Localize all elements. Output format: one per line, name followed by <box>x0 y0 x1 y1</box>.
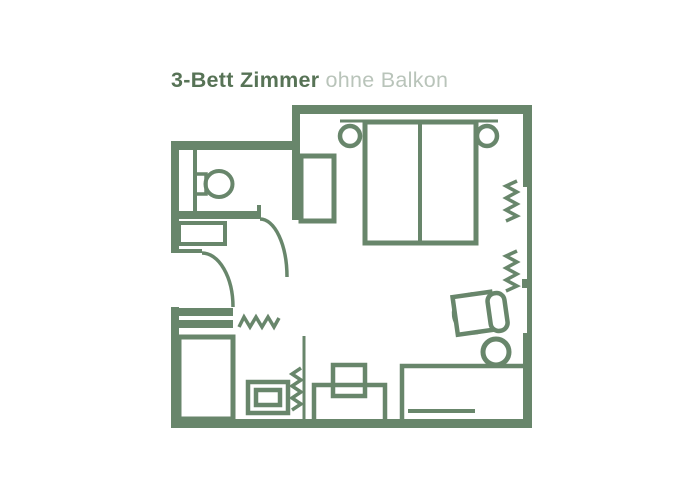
window-band <box>527 187 532 333</box>
curtain-window-1-icon <box>506 181 517 221</box>
bedside-lamp-left-icon <box>340 126 360 146</box>
stool-icon <box>483 339 509 365</box>
minibar-inner <box>256 390 280 405</box>
wall-bathroom-top <box>171 141 300 150</box>
bathroom <box>179 150 233 244</box>
bathroom-door-arc <box>260 219 287 277</box>
doors <box>171 219 287 307</box>
entry-zigzag-icon <box>239 317 279 327</box>
left-storage <box>177 308 233 419</box>
tv-zigzag-icon <box>292 368 301 410</box>
curtain-window-2-icon <box>506 251 517 291</box>
wall-bathroom-bottom <box>179 211 258 219</box>
shoe-shelf-bottom <box>177 320 233 328</box>
shoe-shelf-top <box>177 308 233 316</box>
tv-icon <box>333 365 365 396</box>
floorplan <box>0 0 700 500</box>
wall-right-upper <box>523 105 532 187</box>
wardrobe-icon <box>179 337 233 419</box>
bedside-lamp-right-icon <box>477 126 497 146</box>
wall-right-lower <box>523 333 532 428</box>
wall-cap <box>257 205 261 219</box>
chair-backrest <box>487 292 509 332</box>
bed-area <box>301 121 498 243</box>
washbasin-shelf-icon <box>179 223 225 244</box>
toilet-icon <box>206 171 233 197</box>
office-chair-icon <box>452 290 509 337</box>
entrance-door-arc <box>202 253 233 307</box>
window-mullion <box>522 279 528 288</box>
wall-top <box>292 105 532 114</box>
tv-stand-icon <box>314 385 385 419</box>
closet-icon <box>301 156 334 221</box>
